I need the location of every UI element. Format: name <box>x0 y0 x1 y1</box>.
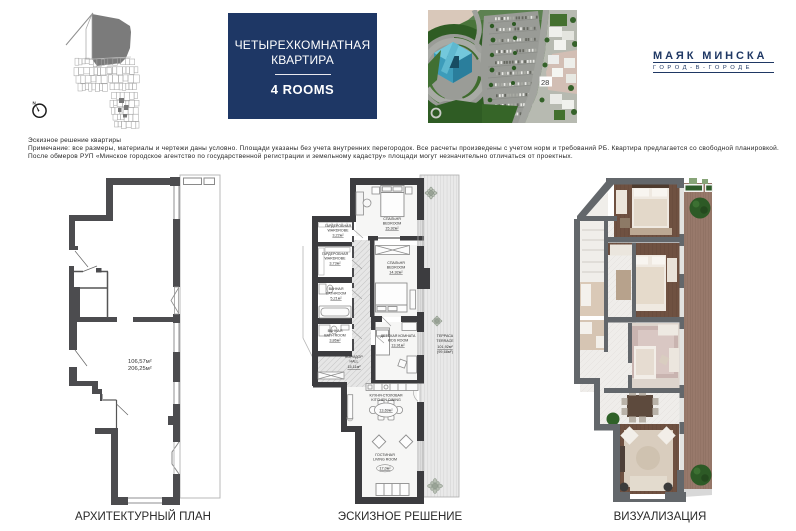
svg-text:13,91м²: 13,91м² <box>391 344 405 348</box>
svg-text:KIDS ROOM: KIDS ROOM <box>388 339 409 343</box>
svg-text:КУХНЯ-СТОЛОВАЯ: КУХНЯ-СТОЛОВАЯ <box>370 394 403 398</box>
svg-text:KITCHEN-DINING: KITCHEN-DINING <box>371 398 401 402</box>
svg-text:3,86м²: 3,86м² <box>329 339 341 343</box>
svg-text:206,25м²: 206,25м² <box>128 366 152 372</box>
svg-text:5,21м²: 5,21м² <box>330 297 342 301</box>
svg-text:ВАННАЯ: ВАННАЯ <box>328 329 343 333</box>
svg-text:ГАРДЕРОБНАЯ: ГАРДЕРОБНАЯ <box>322 252 349 256</box>
svg-text:ВАННАЯ: ВАННАЯ <box>329 287 344 291</box>
svg-text:3,73м²: 3,73м² <box>329 262 341 266</box>
svg-text:15,92м²: 15,92м² <box>385 227 399 231</box>
svg-text:13,69м²: 13,69м² <box>379 409 393 413</box>
svg-text:101,92м²: 101,92м² <box>437 345 453 349</box>
svg-text:КОРИДОР: КОРИДОР <box>345 355 363 359</box>
svg-text:СПАЛЬНЯ: СПАЛЬНЯ <box>383 217 401 221</box>
svg-text:ГАРДЕРОБНАЯ: ГАРДЕРОБНАЯ <box>325 224 352 228</box>
svg-text:WARDROBE: WARDROBE <box>327 229 349 233</box>
svg-text:17,0м²: 17,0м² <box>379 467 391 471</box>
svg-text:BEDROOM: BEDROOM <box>383 222 402 226</box>
svg-text:BATHROOM: BATHROOM <box>326 292 347 296</box>
svg-text:ТЕРРАСА: ТЕРРАСА <box>437 334 454 338</box>
svg-text:HALL: HALL <box>350 360 359 364</box>
svg-text:ГОСТИНАЯ: ГОСТИНАЯ <box>375 453 395 457</box>
svg-text:(99,68м²): (99,68м²) <box>437 350 454 354</box>
svg-text:BATH ROOM: BATH ROOM <box>324 334 346 338</box>
svg-text:15,11м²: 15,11м² <box>347 365 361 369</box>
svg-text:BEDROOM: BEDROOM <box>387 266 406 270</box>
svg-text:28: 28 <box>541 78 549 87</box>
svg-text:TERRACE: TERRACE <box>436 339 454 343</box>
svg-text:ДЕТСКАЯ КОМНАТА: ДЕТСКАЯ КОМНАТА <box>381 334 416 338</box>
svg-text:3,22м²: 3,22м² <box>332 234 344 238</box>
svg-text:106,57м²: 106,57м² <box>128 359 152 365</box>
svg-text:14,92м²: 14,92м² <box>389 271 403 275</box>
svg-text:СПАЛЬНЯ: СПАЛЬНЯ <box>387 261 405 265</box>
svg-text:WARDROBE: WARDROBE <box>324 257 346 261</box>
svg-text:LIVING ROOM: LIVING ROOM <box>373 458 397 462</box>
